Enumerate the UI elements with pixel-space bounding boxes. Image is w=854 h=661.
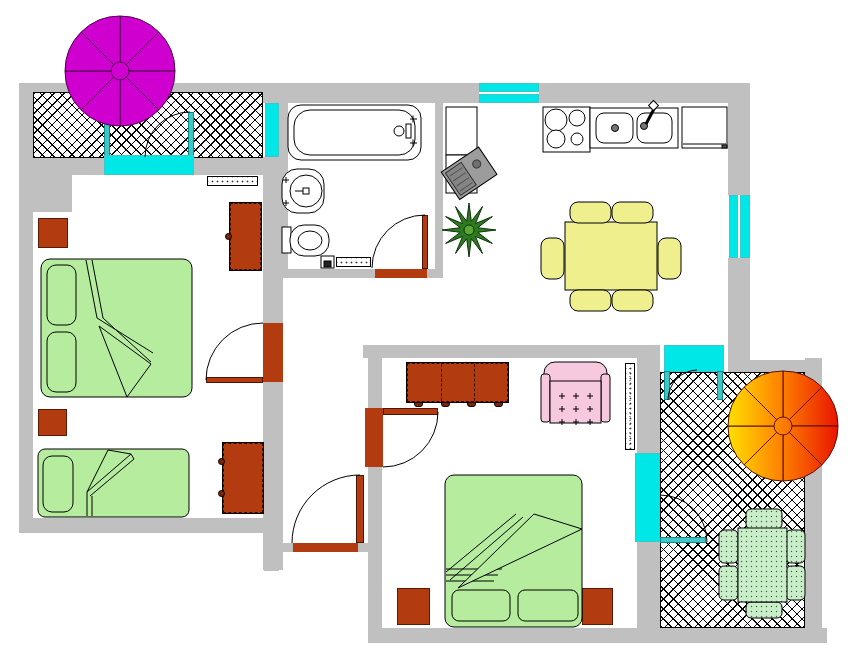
- single-bed[interactable]: [38, 449, 189, 517]
- sideboard-foot-4: [494, 402, 503, 407]
- bathroom-door-threshold[interactable]: [375, 269, 427, 278]
- dining-chair-top-2[interactable]: [612, 202, 653, 223]
- wall-entry-bit-right: [358, 543, 368, 552]
- wall-hall-left-post: [264, 533, 279, 571]
- living-door-leaf[interactable]: [383, 408, 438, 415]
- wardrobe-knob: [225, 233, 232, 240]
- dining-chair-left[interactable]: [541, 238, 564, 279]
- toilet[interactable]: [282, 225, 329, 256]
- wall-living-right-upper: [637, 345, 660, 453]
- bedroom-door-arc: [206, 323, 263, 380]
- living-door-arc: [383, 412, 438, 467]
- radiator-bedroom: [207, 176, 258, 186]
- window-kitchen-right-pane2[interactable]: [740, 195, 750, 258]
- washbasin[interactable]: [282, 169, 324, 213]
- wall-bottom: [368, 628, 827, 643]
- balcony-left-door-post-b: [188, 112, 194, 157]
- nightstand-4[interactable]: [582, 588, 613, 625]
- balcony-left-floor: [33, 92, 263, 158]
- dining-set[interactable]: [541, 202, 681, 311]
- kitchen-cabinet[interactable]: [446, 107, 477, 193]
- wardrobe[interactable]: [230, 203, 261, 270]
- refrigerator[interactable]: [682, 107, 727, 148]
- tv-radio[interactable]: [441, 147, 497, 200]
- entrance-door-threshold[interactable]: [293, 543, 358, 552]
- nightstand-2[interactable]: [38, 409, 67, 436]
- wall-living-left-upper: [368, 358, 382, 408]
- dining-chair-right[interactable]: [658, 238, 681, 279]
- wall-bath-bottom-right: [427, 269, 443, 278]
- dresser-knob-2: [218, 490, 225, 497]
- double-bed-bottom[interactable]: [445, 475, 582, 627]
- dining-chair-top-1[interactable]: [570, 202, 611, 223]
- wall-top-2: [278, 83, 479, 103]
- window-kitchen-right-pane1[interactable]: [729, 195, 738, 258]
- sideboard-foot-2: [441, 402, 450, 407]
- window-living-balcony[interactable]: [635, 453, 660, 542]
- balcony-left-door-post-a: [104, 112, 110, 157]
- dining-chair-bottom-2[interactable]: [612, 290, 653, 311]
- wall-bath-right: [435, 103, 443, 278]
- double-bed-left[interactable]: [41, 259, 192, 397]
- armchair[interactable]: [541, 362, 610, 425]
- balcony-right-door-glass[interactable]: [664, 345, 724, 372]
- living-door-jamb[interactable]: [365, 408, 383, 467]
- sideboard-divider-2: [474, 364, 475, 401]
- wall-top-balcony: [19, 83, 278, 92]
- bathtub[interactable]: [288, 105, 421, 160]
- wall-kitchen-right-lower: [728, 258, 750, 372]
- balcony-right-floor: [660, 372, 805, 628]
- wall-bedroom-bottom: [19, 518, 283, 533]
- window-bath-balcony[interactable]: [265, 103, 279, 157]
- floor-plan: [0, 0, 854, 661]
- houseplant[interactable]: [442, 203, 496, 257]
- sideboard-divider-1: [441, 364, 442, 401]
- sideboard[interactable]: [407, 363, 508, 402]
- dresser[interactable]: [223, 443, 263, 513]
- nightstand-3[interactable]: [397, 588, 430, 625]
- balcony-door-leaf-open[interactable]: [660, 537, 706, 543]
- wall-corner-block: [33, 173, 72, 212]
- waste-bin[interactable]: [321, 256, 334, 268]
- bedroom-door-leaf[interactable]: [206, 377, 263, 383]
- wall-living-right-lower: [637, 542, 660, 628]
- kitchen-sink[interactable]: [590, 101, 678, 148]
- wall-entry-bit-left: [279, 543, 293, 552]
- sideboard-foot-3: [467, 402, 476, 407]
- bathroom-door-leaf[interactable]: [422, 215, 428, 269]
- wall-balcony-right-side: [805, 358, 822, 643]
- window-bedroom-balcony[interactable]: [104, 155, 194, 175]
- balcony-right-door-post-a: [664, 371, 670, 400]
- bathroom-door-arc: [372, 215, 425, 268]
- nightstand-1[interactable]: [38, 218, 68, 248]
- wall-bath-bottom-left: [278, 269, 375, 278]
- dresser-knob-1: [218, 458, 225, 465]
- balcony-right-door-post-b: [717, 371, 723, 400]
- radiator-living: [625, 363, 635, 450]
- wall-top-3: [539, 83, 728, 103]
- stove[interactable]: [543, 107, 590, 152]
- bedroom-door-threshold[interactable]: [263, 323, 283, 382]
- wall-kitchen-right-upper: [728, 83, 750, 195]
- wall-bath-left: [278, 103, 288, 278]
- wall-left: [19, 83, 33, 533]
- wall-living-top: [363, 345, 639, 358]
- dining-table[interactable]: [565, 222, 657, 290]
- wall-living-left-lower: [368, 467, 382, 628]
- dining-chair-bottom-1[interactable]: [570, 290, 611, 311]
- window-kitchen-top-pane2[interactable]: [479, 94, 539, 103]
- sideboard-foot-1: [414, 402, 423, 407]
- bath-mat: [336, 257, 371, 267]
- window-kitchen-top-pane1[interactable]: [479, 83, 539, 92]
- entrance-door-leaf[interactable]: [356, 475, 364, 543]
- entrance-door-arc: [292, 475, 360, 543]
